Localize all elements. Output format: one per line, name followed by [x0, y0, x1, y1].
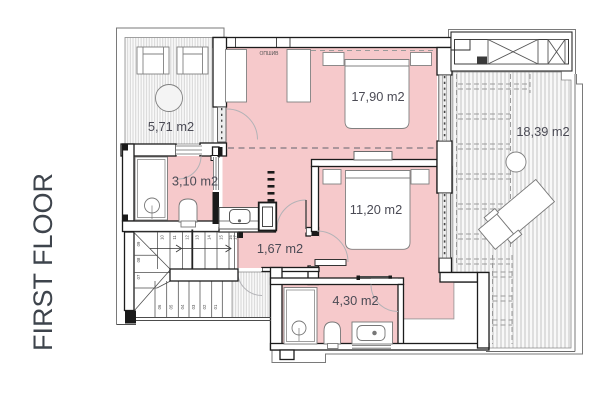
svg-text:08: 08 [136, 257, 141, 262]
svg-text:01: 01 [213, 304, 218, 309]
svg-text:12: 12 [185, 235, 190, 240]
svg-text:10: 10 [160, 235, 165, 240]
svg-text:1,67 m2: 1,67 m2 [257, 241, 303, 256]
svg-text:18,39 m2: 18,39 m2 [516, 124, 569, 139]
svg-text:06: 06 [157, 304, 162, 309]
svg-text:5,71 m2: 5,71 m2 [148, 119, 194, 134]
svg-text:02: 02 [202, 304, 207, 309]
svg-text:ОПШИВ: ОПШИВ [260, 51, 280, 57]
svg-text:11: 11 [172, 235, 177, 240]
svg-text:14: 14 [207, 235, 212, 240]
svg-text:05: 05 [169, 304, 174, 309]
svg-text:11,20 m2: 11,20 m2 [350, 202, 402, 217]
svg-text:17: 17 [233, 235, 238, 240]
svg-text:4,30 m2: 4,30 m2 [332, 293, 378, 308]
svg-text:17,90 m2: 17,90 m2 [351, 89, 404, 104]
svg-text:07: 07 [136, 274, 141, 279]
svg-text:04: 04 [180, 304, 185, 309]
svg-text:09: 09 [136, 241, 141, 246]
svg-text:03: 03 [191, 304, 196, 309]
svg-text:FIRST FLOOR: FIRST FLOOR [28, 173, 58, 351]
svg-text:15: 15 [219, 235, 224, 240]
svg-text:13: 13 [195, 235, 200, 240]
svg-text:3,10 m2: 3,10 m2 [172, 174, 218, 189]
